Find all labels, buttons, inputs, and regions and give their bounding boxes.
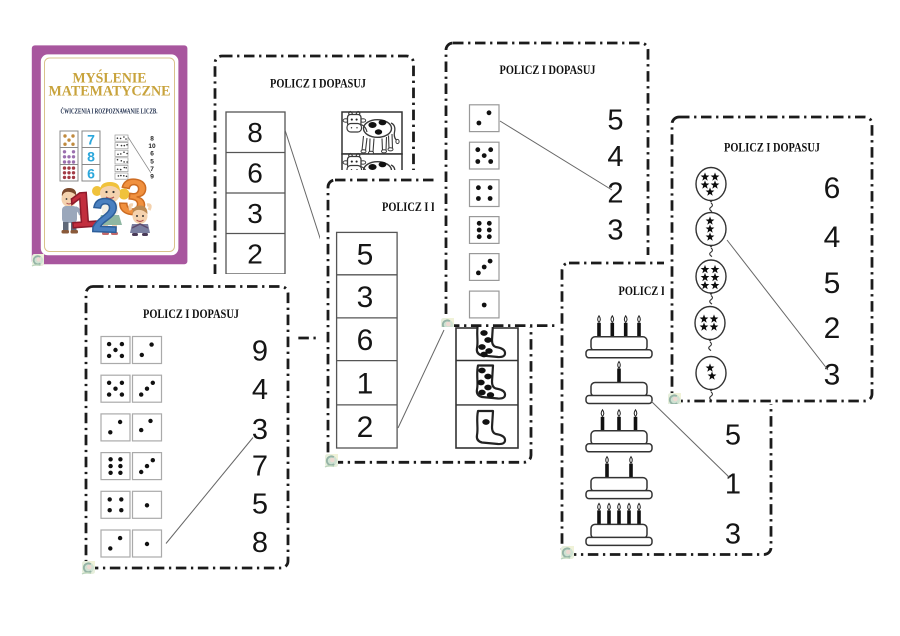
svg-text:7: 7 xyxy=(252,450,268,482)
svg-text:3: 3 xyxy=(725,518,741,550)
svg-text:5: 5 xyxy=(150,158,154,165)
svg-text:POLICZ I DOPASUJ: POLICZ I DOPASUJ xyxy=(270,76,366,91)
svg-text:3: 3 xyxy=(824,358,841,391)
svg-text:7: 7 xyxy=(150,166,154,173)
svg-text:4: 4 xyxy=(252,373,268,405)
svg-text:5: 5 xyxy=(607,104,623,136)
svg-text:POLICZ I DOPASUJ: POLICZ I DOPASUJ xyxy=(500,62,596,77)
svg-text:MATEMATYCZNE: MATEMATYCZNE xyxy=(49,84,171,100)
svg-text:9: 9 xyxy=(150,174,154,181)
svg-text:1: 1 xyxy=(725,468,741,500)
svg-text:8: 8 xyxy=(252,527,268,559)
svg-text:3: 3 xyxy=(607,214,623,246)
svg-text:4: 4 xyxy=(607,141,623,173)
svg-text:9: 9 xyxy=(252,335,268,367)
svg-text:7: 7 xyxy=(87,132,95,148)
svg-text:2: 2 xyxy=(824,312,841,345)
svg-text:5: 5 xyxy=(824,267,841,300)
svg-text:6: 6 xyxy=(824,172,841,205)
svg-text:8: 8 xyxy=(87,149,95,165)
svg-text:2: 2 xyxy=(607,177,623,209)
svg-text:6: 6 xyxy=(357,324,374,357)
svg-text:5: 5 xyxy=(252,488,268,520)
svg-text:6: 6 xyxy=(247,158,263,189)
svg-text:5: 5 xyxy=(725,419,741,451)
svg-text:6: 6 xyxy=(87,166,95,182)
svg-text:8: 8 xyxy=(150,136,154,143)
svg-text:5: 5 xyxy=(357,238,374,271)
svg-text:4: 4 xyxy=(824,221,841,254)
svg-text:3: 3 xyxy=(252,413,268,445)
svg-text:10: 10 xyxy=(148,143,156,150)
svg-text:2: 2 xyxy=(247,239,263,270)
svg-text:2: 2 xyxy=(357,411,374,444)
svg-text:8: 8 xyxy=(247,117,263,148)
svg-text:6: 6 xyxy=(150,151,154,158)
svg-text:POLICZ I DOPASUJ: POLICZ I DOPASUJ xyxy=(143,307,239,321)
svg-text:POLICZ I DOPASUJ: POLICZ I DOPASUJ xyxy=(724,140,820,155)
svg-text:3: 3 xyxy=(357,281,374,314)
svg-text:1: 1 xyxy=(357,368,374,401)
svg-text:2: 2 xyxy=(91,190,120,244)
svg-text:3: 3 xyxy=(247,198,263,229)
svg-text:ĆWICZENIA I ROZPOZNAWANIE LICZ: ĆWICZENIA I ROZPOZNAWANIE LICZB. xyxy=(61,108,158,116)
